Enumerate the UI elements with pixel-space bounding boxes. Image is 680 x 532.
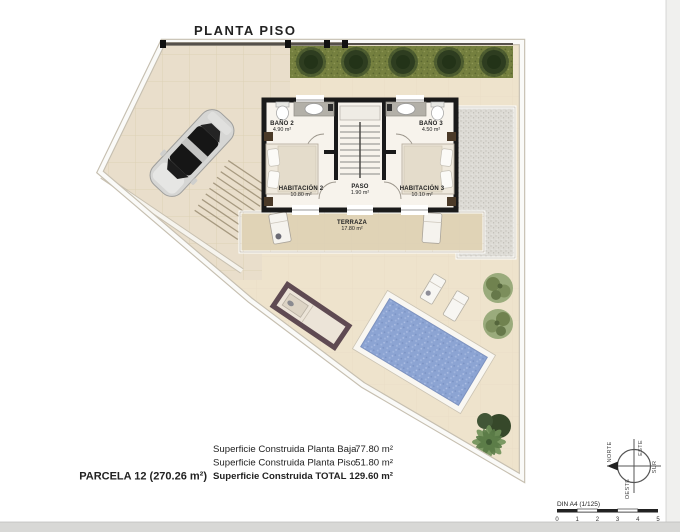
area-summary: Superficie Construida Planta Baja 77.80 …	[79, 444, 394, 483]
terraza: TERRAZA 17.80 m²	[240, 212, 484, 252]
terraza-area: 17.80 m²	[341, 226, 362, 232]
compass-north-label: NORTE	[607, 442, 613, 463]
summary-row-value: 129.60 m²	[349, 471, 393, 482]
habitacion2-label: HABITACIÓN 2	[279, 184, 324, 192]
bano3-label: BAÑO 3	[419, 120, 443, 127]
nightstand	[264, 132, 273, 141]
nightstand	[447, 132, 456, 141]
compass-south-label: SUR	[652, 461, 658, 474]
sink-icon	[305, 104, 323, 115]
compass-east-label: ESTE	[638, 440, 644, 456]
toilet-icon	[432, 106, 444, 120]
summary-row-value: 77.80 m²	[355, 444, 394, 455]
parcel-label: PARCELA 12 (270.26 m²)	[79, 471, 207, 483]
habitacion3-area: 10.10 m²	[411, 192, 432, 198]
floor-plan-drawing: TERRAZA 17.80 m²	[0, 0, 680, 532]
summary-row-value: 51.80 m²	[355, 458, 394, 469]
nightstand	[447, 197, 456, 206]
summary-row-label: Superficie Construida Planta Piso	[213, 458, 356, 469]
bano2-label: BAÑO 2	[270, 120, 294, 127]
scale-bar-label: DIN A4 (1/125)	[557, 501, 600, 508]
scale-bar: DIN A4 (1/125) 0 1 2 3 4 5	[555, 501, 660, 523]
toilet-icon	[277, 106, 289, 120]
bano3-area: 4.50 m²	[422, 127, 440, 133]
floor-plan-page: TERRAZA 17.80 m²	[0, 0, 680, 532]
summary-row-label: Superficie Construida TOTAL	[213, 471, 347, 482]
compass-rose: NORTE ESTE SUR OESTE	[607, 439, 661, 499]
page-title: PLANTA PISO	[194, 23, 296, 38]
summary-row-label: Superficie Construida Planta Baja	[213, 444, 357, 455]
sink-icon	[397, 104, 415, 115]
shrub-2	[483, 309, 513, 339]
paso-area: 1.90 m²	[351, 190, 369, 196]
hedge-strip	[290, 46, 513, 78]
bano2-area: 4.90 m²	[273, 127, 291, 133]
nightstand	[264, 197, 273, 206]
habitacion3-label: HABITACIÓN 3	[400, 184, 445, 192]
shower-icon	[328, 104, 333, 111]
shower-icon	[387, 104, 392, 111]
compass-west-label: OESTE	[625, 479, 631, 499]
house: BAÑO 2 4.90 m² BAÑO 3 4.50 m² HABITACIÓN…	[264, 95, 456, 215]
shrub-1	[483, 273, 513, 303]
habitacion2-area: 10.80 m²	[290, 192, 311, 198]
terrace-lounger-right	[422, 212, 442, 243]
